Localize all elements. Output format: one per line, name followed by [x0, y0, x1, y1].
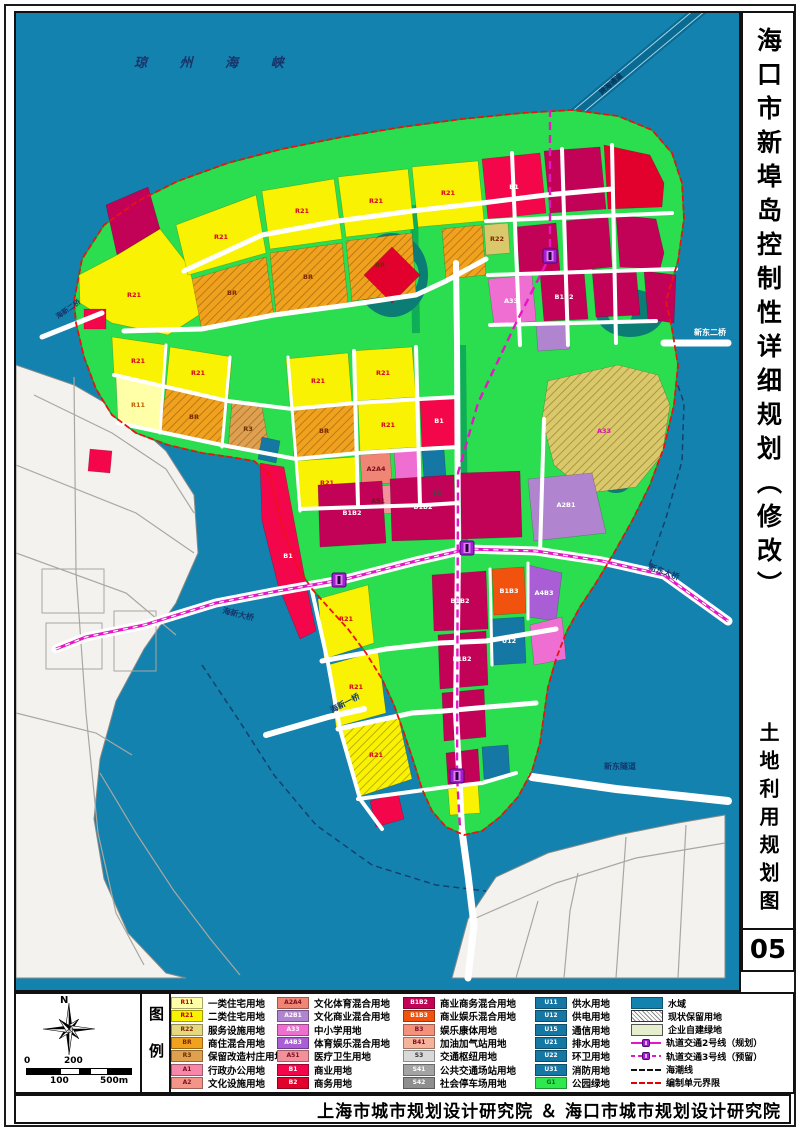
legend-label: 通信用地 [572, 1023, 610, 1037]
legend-label: 水域 [668, 997, 686, 1010]
legend-item: U15通信用地 [535, 1024, 631, 1036]
legend-item: U22环卫用地 [535, 1050, 631, 1062]
parcel-code: B1B2 [451, 597, 470, 605]
legend-item: B1商业用地 [277, 1064, 403, 1076]
parcel-code: R21 [349, 683, 364, 691]
legend-item: A4B3体育娱乐混合用地 [277, 1037, 403, 1049]
legend-label: 商业用地 [314, 1063, 352, 1077]
parcel-code: BR [303, 273, 313, 281]
legend-label: 消防用地 [572, 1063, 610, 1077]
parcel-code: A2B1 [556, 501, 576, 509]
scale-segment [107, 1069, 131, 1074]
legend-label: 编制单元界限 [666, 1076, 720, 1089]
legend-item: U11供水用地 [535, 997, 631, 1009]
legend-column: 水域现状保留用地企业自建绿地轨道交通2号线（规划）轨道交通3号线（预留）海潮线编… [631, 996, 789, 1090]
parcel-code: R11 [131, 401, 146, 409]
legend-swatch-BR: BR [171, 1037, 203, 1049]
legend-label: 商住混合用地 [208, 1036, 265, 1050]
parcel-code: BR [319, 427, 329, 435]
legend: N 0 200 100 500m 图例 R11一类住宅用地R21二类住宅用地R2… [14, 992, 795, 1094]
parcel-U [482, 745, 510, 779]
legend-swatch-B1B2: B1B2 [403, 997, 435, 1009]
legend-item: U31消防用地 [535, 1064, 631, 1076]
legend-label: 体育娱乐混合用地 [314, 1036, 390, 1050]
legend-item: A51医疗卫生用地 [277, 1050, 403, 1062]
parcel-A2B1 [536, 323, 570, 351]
legend-swatch-A4B3: A4B3 [277, 1037, 309, 1049]
parcel-B1B2 [460, 471, 522, 539]
parcel-code: A33 [597, 427, 611, 435]
parcel-code: R21 [191, 369, 206, 377]
legend-label: 二类住宅用地 [208, 1009, 265, 1023]
legend-item: R22服务设施用地 [171, 1024, 277, 1036]
legend-label: 商务用地 [314, 1076, 352, 1090]
legend-label: 供电用地 [572, 1009, 610, 1023]
parcel-code: R22 [490, 235, 504, 243]
legend-label: 社会停车场用地 [440, 1076, 507, 1090]
land-use-map: 琼 州 海 峡跨海通道新东二桥海新大桥海新一桥海新二桥新东大桥新东隧道R21R2… [16, 13, 739, 990]
legend-item: 水域 [631, 997, 789, 1009]
island-road [490, 569, 492, 665]
legend-item: U12供电用地 [535, 1010, 631, 1022]
legend-column: A2A4文化体育混合用地A2B1文化商业混合用地A33中小学用地A4B3体育娱乐… [277, 996, 403, 1090]
parcel-U [258, 437, 280, 463]
legend-item: R11一类住宅用地 [171, 997, 277, 1009]
parcel-code: BR [375, 261, 385, 269]
legend-label: 供水用地 [572, 996, 610, 1010]
legend-swatch-U31: U31 [535, 1064, 567, 1076]
parcel-code: B1 [283, 552, 293, 560]
map-label: 新东隧道 [604, 761, 636, 771]
parcel-code: R21 [381, 421, 396, 429]
parcel-code: BR [189, 413, 199, 421]
legend-swatch-A51: A51 [277, 1050, 309, 1062]
sea-name-label: 琼 州 海 峡 [134, 55, 298, 71]
legend-item: S42社会停车场用地 [403, 1077, 535, 1089]
legend-header: 图例 [148, 1006, 163, 1080]
legend-column: R11一类住宅用地R21二类住宅用地R22服务设施用地BR商住混合用地R3保留改… [171, 996, 277, 1090]
legend-swatch-S42: S42 [403, 1077, 435, 1089]
legend-column: U11供水用地U12供电用地U15通信用地U21排水用地U22环卫用地U31消防… [535, 996, 631, 1090]
legend-item: 现状保留用地 [631, 1010, 789, 1022]
legend-label: 轨道交通3号线（预留） [666, 1050, 762, 1063]
legend-item: 企业自建绿地 [631, 1024, 789, 1036]
metro-station-icon [338, 576, 341, 584]
legend-label: 医疗卫生用地 [314, 1049, 371, 1063]
legend-header-box: 图例 [140, 994, 171, 1092]
legend-swatch-B3: B3 [403, 1024, 435, 1036]
legend-label: 公共交通场站用地 [440, 1063, 516, 1077]
parcel-code: R21 [369, 751, 384, 759]
legend-item: S41公共交通场站用地 [403, 1064, 535, 1076]
parcel-code: S3 [432, 489, 441, 497]
legend-item: G1公园绿地 [535, 1077, 631, 1089]
metro-station-icon [456, 772, 459, 780]
legend-swatch-R3: R3 [171, 1050, 203, 1062]
legend-label: 海潮线 [666, 1063, 693, 1076]
legend-swatch-U11: U11 [535, 997, 567, 1009]
legend-symbol-dash-red [631, 1078, 661, 1088]
map-container: 琼 州 海 峡跨海通道新东二桥海新大桥海新一桥海新二桥新东大桥新东隧道R21R2… [14, 11, 741, 992]
legend-swatch-U15: U15 [535, 1024, 567, 1036]
credit-text: 上海市城市规划设计研究院 ＆ 海口市城市规划设计研究院 [317, 1097, 781, 1122]
parcel-code: A33 [504, 297, 518, 305]
parcel-code: B1B2 [555, 293, 574, 301]
legend-swatch-A1: A1 [171, 1064, 203, 1076]
metro-station-icon [642, 1052, 650, 1060]
legend-label: 服务设施用地 [208, 1023, 265, 1037]
title-panel: 海口市新埠岛控制性详细规划（修改） 土地利用规划图 05 [741, 11, 795, 972]
legend-label: 一类住宅用地 [208, 996, 265, 1010]
parcel-U [422, 449, 446, 479]
dash-line-symbol [631, 1069, 661, 1071]
scale-tick: 0 [24, 1056, 30, 1066]
parcel-code: R21 [320, 479, 335, 487]
legend-item: B41加油加气站用地 [403, 1037, 535, 1049]
legend-item: B2商务用地 [277, 1077, 403, 1089]
legend-swatch-S3: S3 [403, 1050, 435, 1062]
legend-swatch-R21: R21 [171, 1010, 203, 1022]
compass-rose-icon [30, 1000, 108, 1058]
legend-label: 轨道交通2号线（规划） [666, 1036, 762, 1049]
sheet-number: 05 [743, 928, 793, 970]
legend-symbol-rail-solid [631, 1038, 661, 1048]
legend-symbol-dash-black [631, 1065, 661, 1075]
parcel-code: R21 [127, 291, 142, 299]
legend-label: 交通枢纽用地 [440, 1049, 497, 1063]
scale-segment [91, 1069, 107, 1074]
legend-swatch-U22: U22 [535, 1050, 567, 1062]
parcel-B1B2 [544, 147, 606, 213]
legend-swatch-A2B1: A2B1 [277, 1010, 309, 1022]
legend-item: BR商住混合用地 [171, 1037, 277, 1049]
legend-label: 商业娱乐混合用地 [440, 1009, 516, 1023]
legend-swatch-U12: U12 [535, 1010, 567, 1022]
scale-segment [61, 1069, 79, 1074]
legend-label: 企业自建绿地 [668, 1023, 722, 1036]
legend-label: 现状保留用地 [668, 1010, 722, 1023]
legend-item: A33中小学用地 [277, 1024, 403, 1036]
page-title: 海口市新埠岛控制性详细规划（修改） [756, 27, 781, 605]
legend-swatch-B1B3: B1B3 [403, 1010, 435, 1022]
map-subtitle: 土地利用规划图 [758, 722, 778, 918]
legend-swatch-U21: U21 [535, 1037, 567, 1049]
legend-label: 商业商务混合用地 [440, 996, 516, 1010]
legend-swatch-G1: G1 [535, 1077, 567, 1089]
legend-swatch-B1: B1 [277, 1064, 309, 1076]
scale-tick: 100 [50, 1076, 69, 1086]
legend-label: 中小学用地 [314, 1023, 362, 1037]
parcel-code: B1B2 [453, 655, 472, 663]
legend-swatch-A2: A2 [171, 1077, 203, 1089]
legend-label: 文化体育混合用地 [314, 996, 390, 1010]
compass-scale-zone: N 0 200 100 500m [16, 994, 140, 1092]
legend-label: 排水用地 [572, 1036, 610, 1050]
legend-swatch-green [631, 1024, 663, 1036]
legend-label: 行政办公用地 [208, 1063, 265, 1077]
dash-line-symbol [631, 1082, 661, 1084]
legend-label: 娱乐康体用地 [440, 1023, 497, 1037]
scale-tick: 500m [100, 1076, 128, 1086]
legend-item: S3交通枢纽用地 [403, 1050, 535, 1062]
scale-bar-segments [26, 1068, 132, 1075]
legend-symbol-rail-dashed [631, 1051, 661, 1061]
legend-item: 海潮线 [631, 1064, 789, 1076]
legend-label: 文化商业混合用地 [314, 1009, 390, 1023]
parcel-B1B2 [564, 217, 612, 271]
legend-item: 轨道交通3号线（预留） [631, 1050, 789, 1062]
legend-item: R3保留改造村庄用地 [171, 1050, 277, 1062]
legend-swatch-water [631, 997, 663, 1009]
parcel-code: R21 [376, 369, 391, 377]
parcel-code: R3 [243, 425, 253, 433]
map-label: 新东二桥 [694, 327, 727, 337]
legend-label: 公园绿地 [572, 1076, 610, 1090]
parcel-code: R21 [441, 189, 456, 197]
parcel-code: R21 [131, 357, 146, 365]
parcel-A33 [530, 617, 566, 665]
legend-swatch-B2: B2 [277, 1077, 309, 1089]
parcel-code: R21 [295, 207, 310, 215]
legend-item: R21二类住宅用地 [171, 1010, 277, 1022]
legend-swatch-R22: R22 [171, 1024, 203, 1036]
parcel-code: A2A4 [366, 465, 386, 473]
parcel-B1B2 [442, 689, 486, 741]
metro-station-icon [549, 252, 552, 260]
legend-swatch-B41: B41 [403, 1037, 435, 1049]
parcel-code: R21 [339, 615, 354, 623]
legend-item: A2文化设施用地 [171, 1077, 277, 1089]
parcel-code: R21 [214, 233, 229, 241]
legend-column: B1B2商业商务混合用地B1B3商业娱乐混合用地B3娱乐康体用地B41加油加气站… [403, 996, 535, 1090]
legend-label: 保留改造村庄用地 [208, 1049, 284, 1063]
legend-swatch-R11: R11 [171, 997, 203, 1009]
scale-bar: 0 200 100 500m [24, 1056, 134, 1090]
legend-swatch-A33: A33 [277, 1024, 309, 1036]
parcel-B1B2 [644, 271, 676, 323]
parcel-code: U12 [502, 637, 516, 645]
metro-station-icon [642, 1039, 650, 1047]
legend-swatch-hatch [631, 1010, 663, 1022]
scale-segment [27, 1069, 61, 1074]
legend-item: B1B2商业商务混合用地 [403, 997, 535, 1009]
parcel-code: B1B2 [414, 503, 433, 511]
credit-bar: 上海市城市规划设计研究院 ＆ 海口市城市规划设计研究院 [14, 1094, 791, 1124]
parcel-A33 [394, 449, 420, 481]
parcel-code: BR [227, 289, 237, 297]
parcel-code: A51 [371, 497, 386, 505]
scale-tick: 200 [64, 1056, 83, 1066]
legend-columns: R11一类住宅用地R21二类住宅用地R22服务设施用地BR商住混合用地R3保留改… [171, 996, 791, 1090]
scale-segment [79, 1069, 91, 1074]
legend-label: 加油加气站用地 [440, 1036, 507, 1050]
legend-item: B3娱乐康体用地 [403, 1024, 535, 1036]
parcel-code: A4B3 [534, 589, 553, 597]
parcel-B1 [88, 449, 112, 473]
legend-item: A2A4文化体育混合用地 [277, 997, 403, 1009]
legend-item: 编制单元界限 [631, 1077, 789, 1089]
parcel-code: R21 [369, 197, 384, 205]
parcel-code: B1 [434, 417, 444, 425]
parcel-code: B1B3 [500, 587, 519, 595]
parcel-B1B2 [616, 215, 664, 269]
legend-item: B1B3商业娱乐混合用地 [403, 1010, 535, 1022]
legend-label: 环卫用地 [572, 1049, 610, 1063]
parcel-code: R21 [311, 377, 326, 385]
legend-label: 文化设施用地 [208, 1076, 265, 1090]
legend-item: A1行政办公用地 [171, 1064, 277, 1076]
legend-item: 轨道交通2号线（规划） [631, 1037, 789, 1049]
metro-station-icon [466, 544, 469, 552]
legend-swatch-S41: S41 [403, 1064, 435, 1076]
legend-swatch-A2A4: A2A4 [277, 997, 309, 1009]
parcel-code: B1 [509, 183, 519, 191]
legend-item: A2B1文化商业混合用地 [277, 1010, 403, 1022]
legend-item: U21排水用地 [535, 1037, 631, 1049]
parcel-code: B1B2 [343, 509, 362, 517]
